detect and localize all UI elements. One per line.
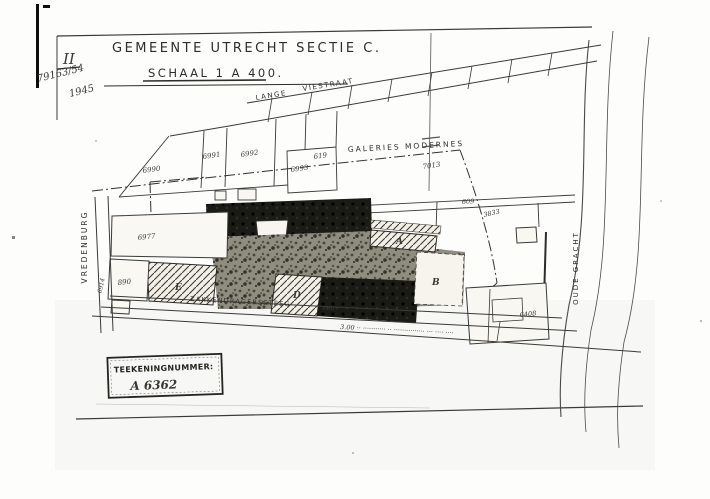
parcel-number-6993: 6993	[290, 164, 309, 174]
parcel-numbers-upper: 6990 6991 6992 6993 619 7013	[142, 149, 441, 175]
parcel-number-6914: 6914	[97, 277, 107, 294]
map-scale: SCHAAL 1 A 400.	[148, 66, 284, 80]
stamp-number: A 6362	[129, 377, 177, 393]
scanned-map-page: OUDE GRACHT II 79163/54 1945 GEMEENTE UT…	[0, 0, 710, 499]
measurement-480: 4.80	[321, 306, 335, 313]
parcel-number-890: 890	[117, 278, 132, 287]
street-label-oude-gracht: OUDE GRACHT	[572, 231, 580, 305]
file-number: 79163/54	[36, 63, 85, 85]
building-letter-b: B	[431, 278, 440, 288]
year-label: 1945	[68, 83, 95, 100]
parcel-number-6991: 6991	[202, 151, 221, 161]
parcel-number-609: 609	[462, 197, 475, 206]
cadastral-map: OUDE GRACHT II 79163/54 1945 GEMEENTE UT…	[0, 0, 710, 499]
street-label-viestraat: VIESTRAAT	[302, 77, 354, 93]
parcel-number-6990: 6990	[142, 165, 161, 175]
sheet-annotations: II 79163/54 1945	[36, 50, 95, 100]
parcel-number-3833: 3833	[483, 207, 501, 219]
street-label-vredenburg: VREDENBURG	[80, 211, 89, 284]
parcel-number-6992: 6992	[240, 149, 259, 159]
parcel-number-7013: 7013	[422, 161, 441, 171]
map-title: GEMEENTE UTRECHT SECTIE C.	[112, 41, 381, 56]
building-letter-e: E	[174, 283, 182, 293]
parcel-boundaries	[119, 111, 337, 200]
parcel-number-619: 619	[313, 151, 328, 161]
dark-building-band	[206, 198, 372, 237]
dark-building-lower	[317, 277, 419, 323]
building-letter-a: A	[395, 237, 403, 247]
building-letter-d: D	[292, 291, 301, 301]
street-label-lange: LANGE	[255, 89, 287, 102]
street-lange-viestraat	[170, 45, 601, 136]
